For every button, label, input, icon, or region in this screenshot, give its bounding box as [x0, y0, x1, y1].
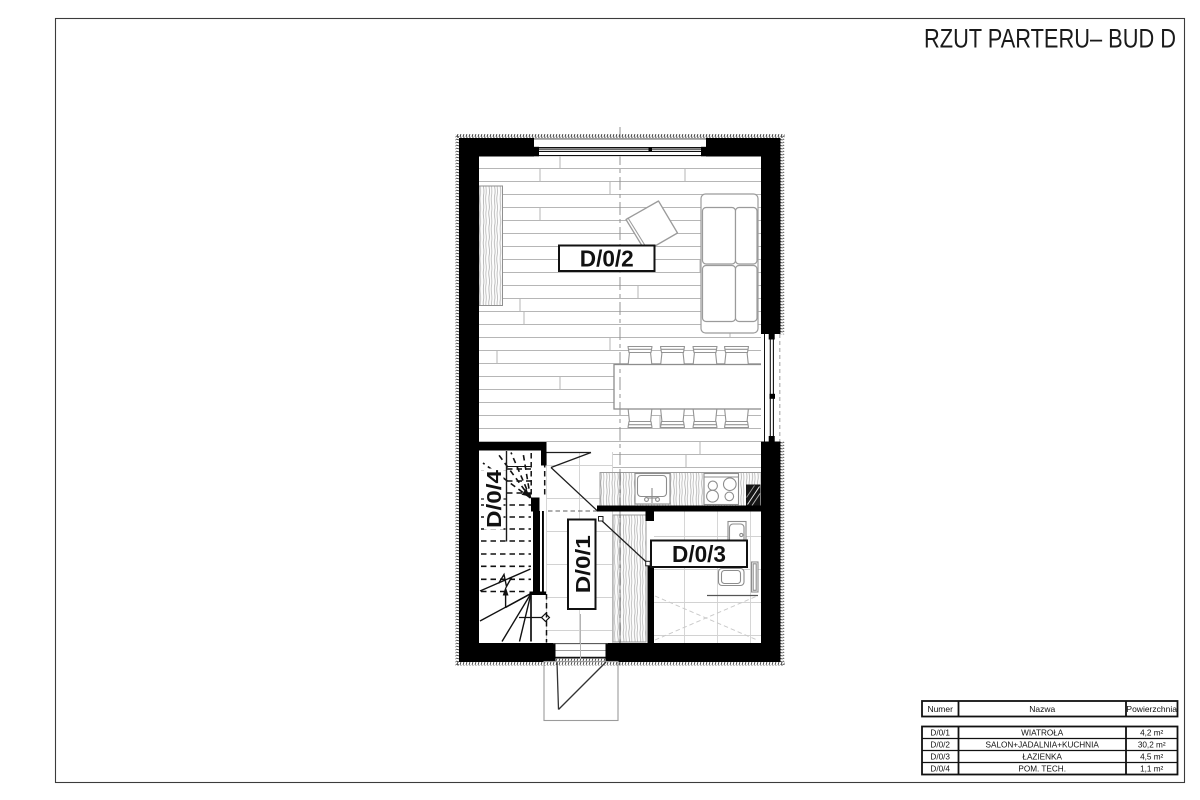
svg-text:ŁAZIENKA: ŁAZIENKA: [1022, 753, 1062, 762]
svg-text:Nazwa: Nazwa: [1029, 704, 1055, 714]
svg-text:D/0/2: D/0/2: [580, 246, 634, 272]
svg-text:4,2 m²: 4,2 m²: [1140, 729, 1163, 738]
svg-text:D/0/1: D/0/1: [573, 535, 595, 593]
svg-text:D/0/4: D/0/4: [930, 765, 950, 774]
svg-text:D/0/2: D/0/2: [930, 741, 950, 750]
svg-text:1,1 m²: 1,1 m²: [1140, 765, 1163, 774]
svg-text:POM. TECH.: POM. TECH.: [1018, 765, 1066, 774]
svg-text:WIATROŁA: WIATROŁA: [1021, 729, 1064, 738]
svg-text:4,5 m²: 4,5 m²: [1140, 753, 1163, 762]
svg-text:D/0/4: D/0/4: [484, 469, 506, 528]
svg-text:D/0/1: D/0/1: [930, 729, 950, 738]
svg-text:30,2 m²: 30,2 m²: [1138, 741, 1166, 750]
svg-text:Powierzchnia: Powierzchnia: [1126, 704, 1177, 714]
svg-text:D/0/3: D/0/3: [672, 541, 726, 567]
svg-text:Numer: Numer: [927, 704, 953, 714]
svg-text:D/0/3: D/0/3: [930, 753, 950, 762]
svg-text:SALON+JADALNIA+KUCHNIA: SALON+JADALNIA+KUCHNIA: [986, 741, 1100, 750]
svg-text:RZUT PARTERU– BUD D: RZUT PARTERU– BUD D: [924, 24, 1176, 54]
